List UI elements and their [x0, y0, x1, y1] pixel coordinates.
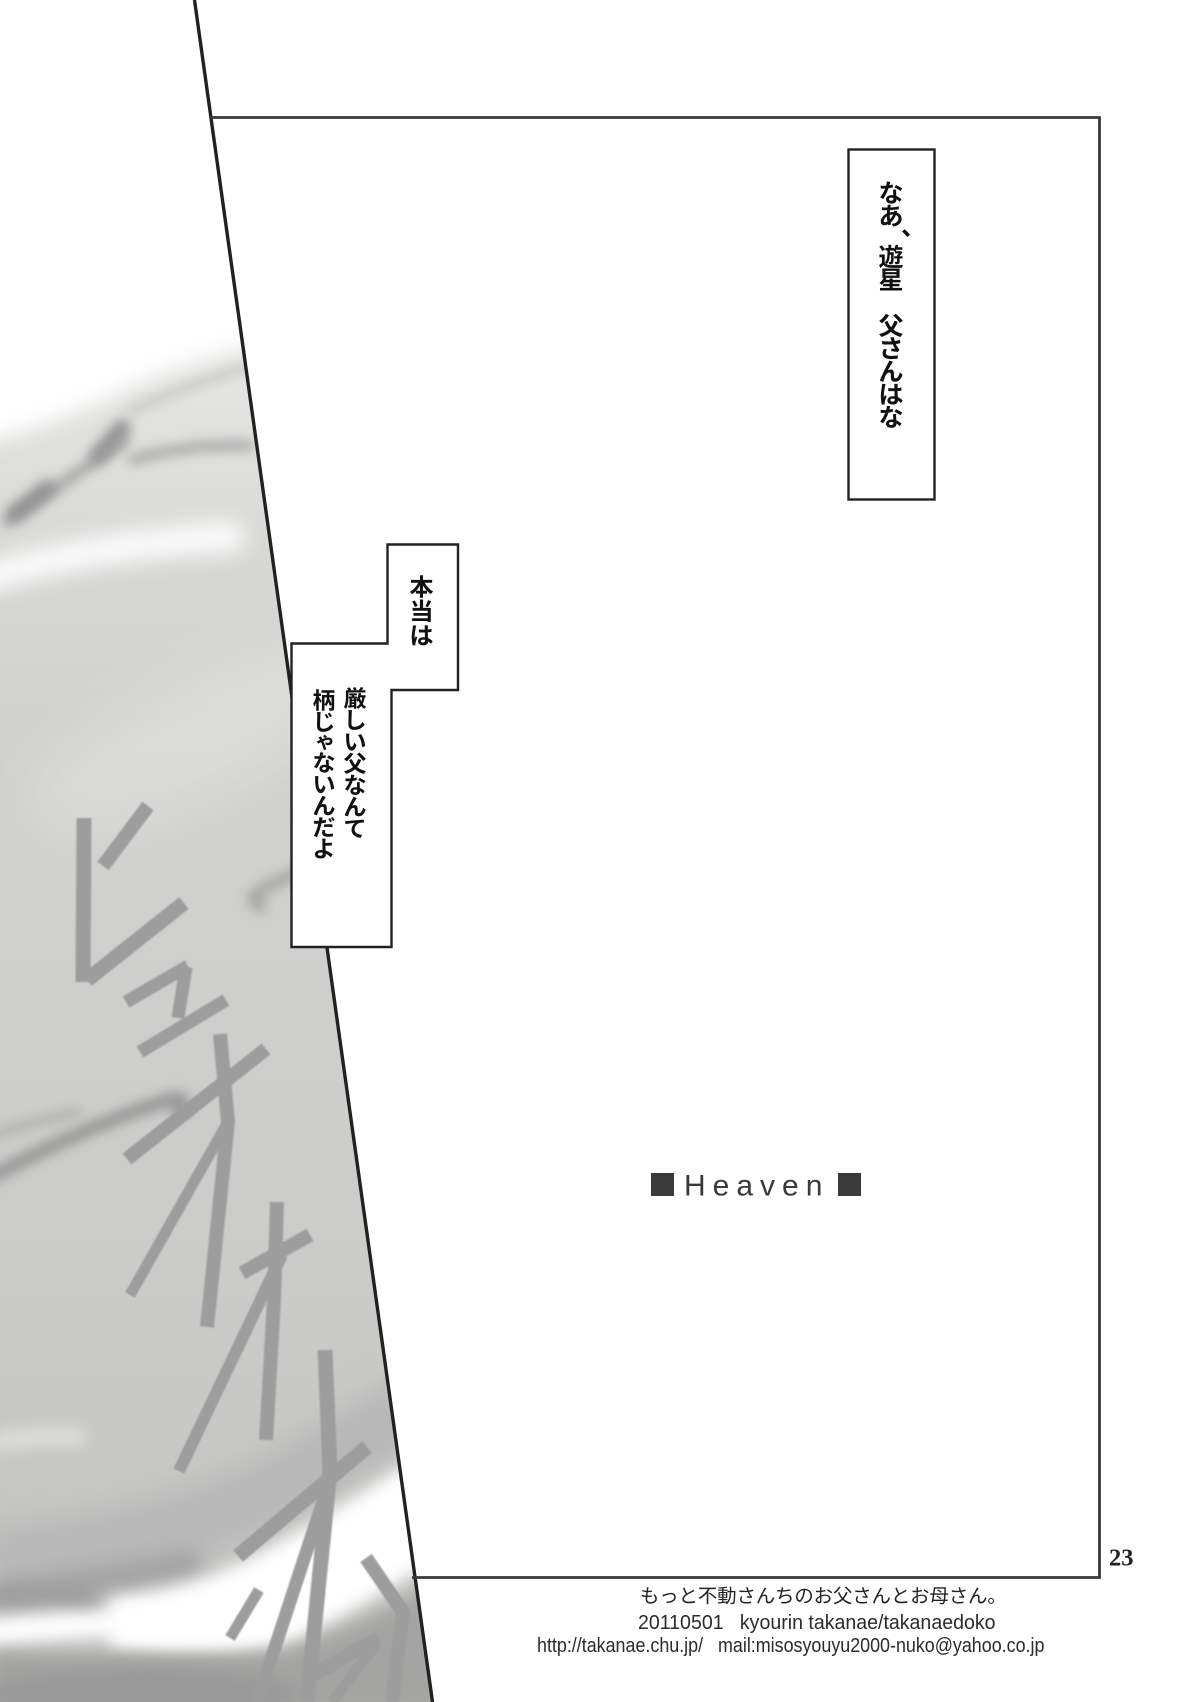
svg-text:23: 23 — [1109, 1545, 1134, 1572]
svg-text:Heaven: Heaven — [684, 1170, 829, 1203]
svg-text:http://takanae.chu.jp/ mail:: http://takanae.chu.jp/ mail:misosyouyu20… — [537, 1635, 1044, 1657]
svg-text:20110501 kyourin takanae/tak: 20110501 kyourin takanae/takanaedoko — [638, 1612, 996, 1635]
